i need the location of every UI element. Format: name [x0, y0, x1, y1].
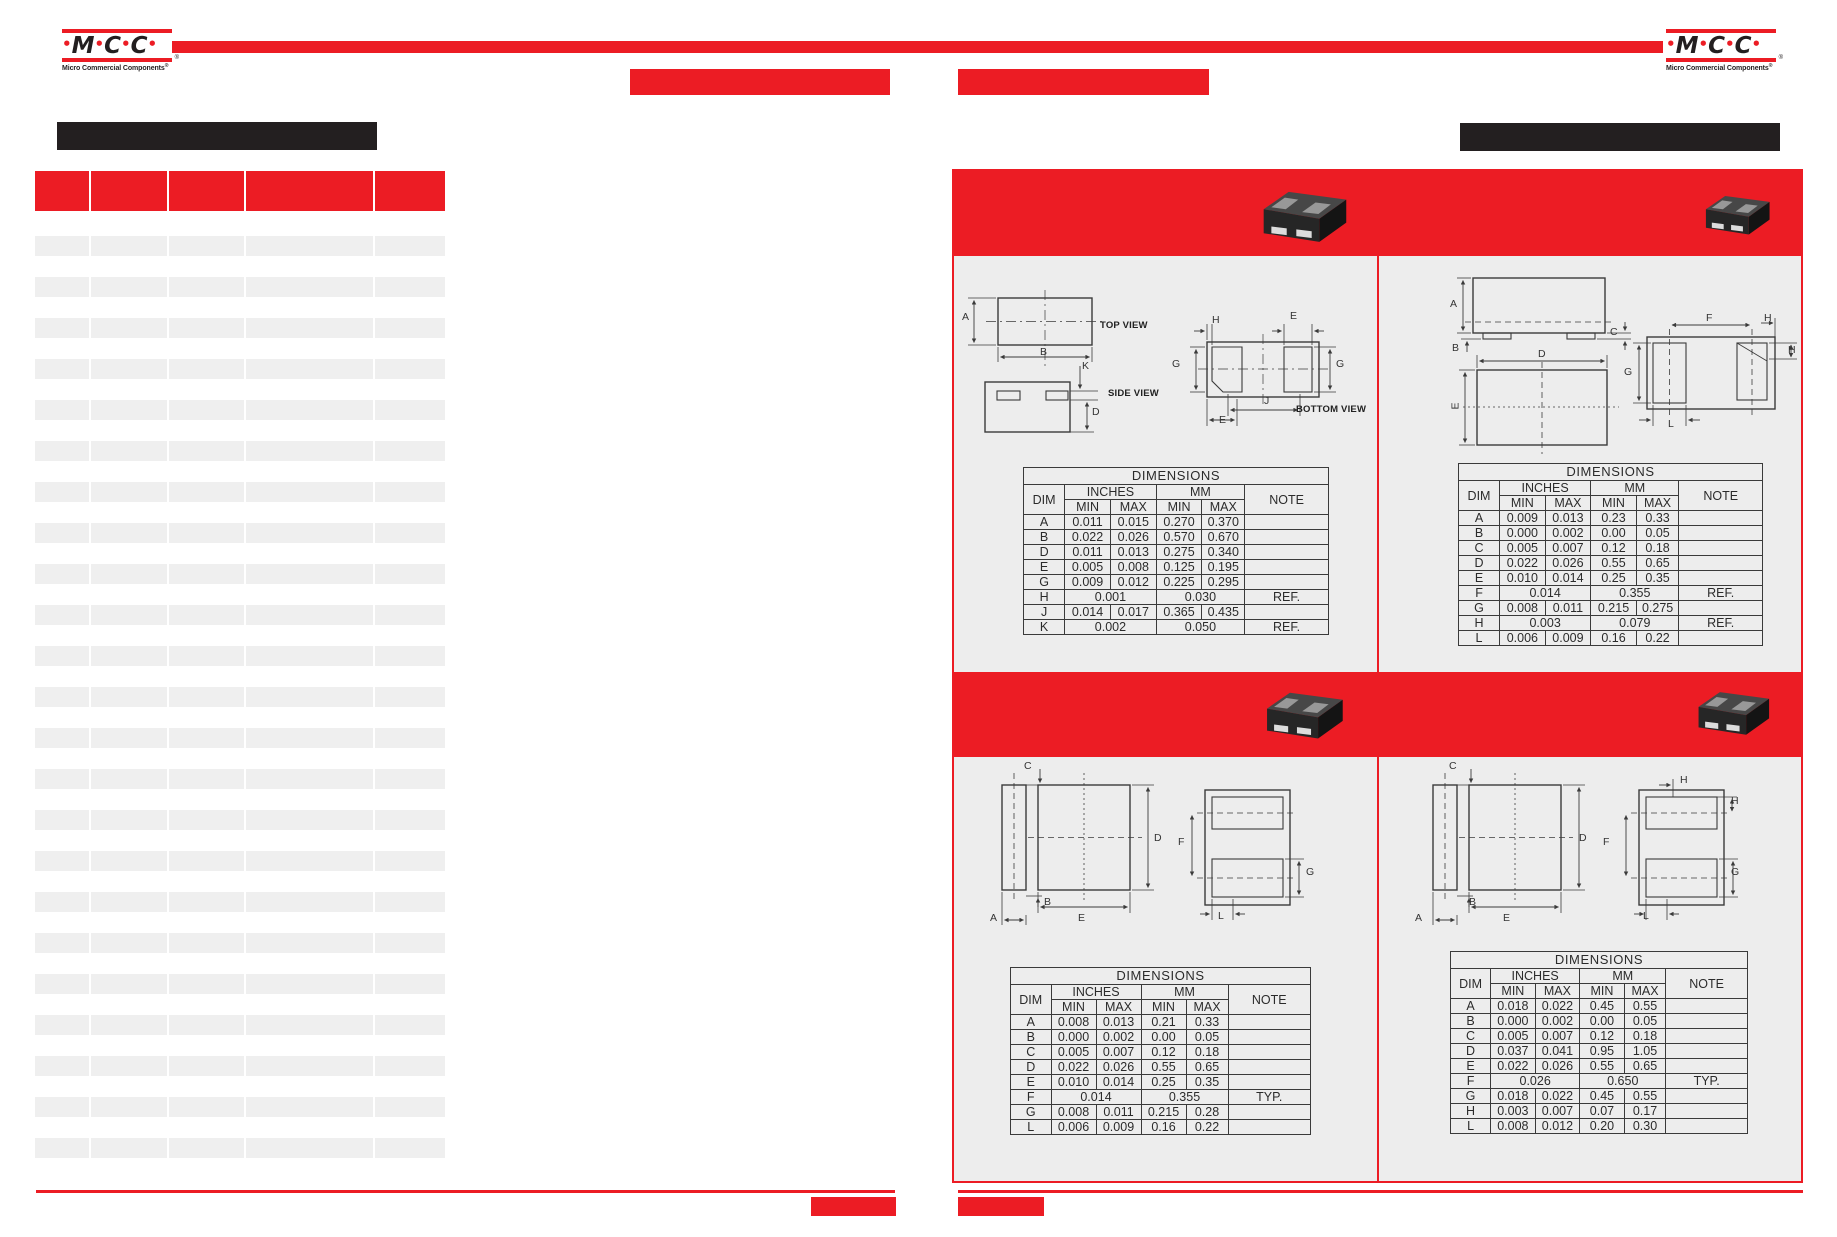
wordmark-dot: • [1666, 33, 1676, 56]
table-cell [246, 769, 373, 789]
subtitle-band-right [958, 69, 1209, 95]
logo-bottom-rule: ® [1666, 58, 1776, 62]
wordmark-letter: M [72, 35, 95, 58]
cell: 0.95 [1580, 1044, 1625, 1059]
table-cell [375, 1097, 445, 1117]
cell: 0.355 [1591, 586, 1679, 601]
table-cell [91, 400, 167, 420]
wordmark-dot: • [1698, 33, 1708, 56]
cell [1245, 575, 1329, 590]
cell: MM [1591, 481, 1679, 496]
cell: 0.022 [1500, 556, 1546, 571]
cell: MIN [1491, 984, 1536, 999]
cell: MIN [1580, 984, 1625, 999]
cell: 0.005 [1051, 1045, 1096, 1060]
package-3d-icon [1256, 180, 1352, 248]
cell [1245, 515, 1329, 530]
cell: DIM [1459, 481, 1500, 511]
table-cell [169, 277, 244, 297]
cell: 0.30 [1624, 1119, 1666, 1134]
table-row [35, 728, 445, 748]
cell [1666, 999, 1748, 1014]
table-cell [169, 810, 244, 830]
table-cell [35, 482, 89, 502]
cell: E [1011, 1075, 1052, 1090]
cell: 0.125 [1156, 560, 1202, 575]
table-cell [169, 1138, 244, 1158]
cell: DIM [1011, 985, 1052, 1015]
table-cell [169, 769, 244, 789]
cell: 0.20 [1580, 1119, 1625, 1134]
cell [1679, 571, 1763, 586]
cell: 0.012 [1110, 575, 1156, 590]
table-cell [375, 1138, 445, 1158]
dimensions-table-q4: DIMENSIONSDIMINCHESMMNOTEMINMAXMINMAXA0.… [1450, 951, 1748, 1134]
cell: 0.003 [1500, 616, 1591, 631]
cell: 0.295 [1202, 575, 1245, 590]
table-cell [246, 318, 373, 338]
table-cell [246, 851, 373, 871]
cell: 0.25 [1591, 571, 1637, 586]
table-cell [375, 728, 445, 748]
dimensions-table-q2: DIMENSIONSDIMINCHESMMNOTEMINMAXMINMAXA0.… [1458, 463, 1763, 646]
cell: 0.05 [1186, 1030, 1228, 1045]
cell: INCHES [1065, 485, 1157, 500]
table-cell [169, 359, 244, 379]
cell: MIN [1051, 1000, 1096, 1015]
cell: 0.013 [1545, 511, 1591, 526]
table-cell [375, 523, 445, 543]
cell [1228, 1015, 1311, 1030]
table-cell [169, 1015, 244, 1035]
table-cell [91, 482, 167, 502]
cell: E [1459, 571, 1500, 586]
table-row [35, 400, 445, 420]
cell: 0.670 [1202, 530, 1245, 545]
dimensions-table: DIMENSIONSDIMINCHESMMNOTEMINMAXMINMAXA0.… [1450, 951, 1748, 1134]
table-header-cell [35, 171, 89, 211]
cell: 0.005 [1491, 1029, 1536, 1044]
table-cell [169, 646, 244, 666]
table-cell [375, 933, 445, 953]
logo-tagline: Micro Commercial Components® [1666, 63, 1776, 72]
cell: 0.006 [1051, 1120, 1096, 1135]
table-cell [91, 277, 167, 297]
cell [1245, 605, 1329, 620]
cell: MIN [1065, 500, 1111, 515]
table-cell [246, 1015, 373, 1035]
footer-rule-left [36, 1190, 895, 1193]
cell: 0.018 [1491, 1089, 1536, 1104]
table-cell [246, 564, 373, 584]
datasheet-page: •M•C•C• ® Micro Commercial Components® •… [0, 0, 1837, 1237]
cell: 0.18 [1636, 541, 1679, 556]
cell: INCHES [1051, 985, 1141, 1000]
table-row [35, 851, 445, 871]
cell: E [1451, 1059, 1491, 1074]
cell: 0.008 [1051, 1105, 1096, 1120]
cell: 0.28 [1186, 1105, 1228, 1120]
cell: 0.35 [1186, 1075, 1228, 1090]
table-cell [35, 810, 89, 830]
cell: 0.65 [1624, 1059, 1666, 1074]
parts-table-header [35, 171, 445, 211]
cell [1679, 511, 1763, 526]
cell: 0.16 [1591, 631, 1637, 646]
cell: K [1024, 620, 1065, 635]
table-cell [246, 646, 373, 666]
table-cell [246, 1138, 373, 1158]
cell [1679, 631, 1763, 646]
table-cell [375, 359, 445, 379]
cell: 0.014 [1096, 1075, 1141, 1090]
table-cell [246, 482, 373, 502]
cell: 0.365 [1156, 605, 1202, 620]
cell: MM [1156, 485, 1244, 500]
cell: 0.012 [1535, 1119, 1580, 1134]
cell: DIMENSIONS [1024, 468, 1329, 485]
cell: MAX [1110, 500, 1156, 515]
table-cell [91, 318, 167, 338]
cell: 0.45 [1580, 999, 1625, 1014]
cell: DIM [1024, 485, 1065, 515]
table-cell [91, 236, 167, 256]
cell [1679, 526, 1763, 541]
cell: 0.014 [1500, 586, 1591, 601]
cell: L [1011, 1120, 1052, 1135]
cell: MAX [1545, 496, 1591, 511]
cell [1666, 1014, 1748, 1029]
table-cell [246, 359, 373, 379]
cell: 0.002 [1096, 1030, 1141, 1045]
cell: 0.001 [1065, 590, 1157, 605]
table-cell [246, 1056, 373, 1076]
table-cell [375, 1056, 445, 1076]
table-cell [91, 646, 167, 666]
wordmark-dot: • [1751, 33, 1761, 56]
cell: H [1451, 1104, 1491, 1119]
cell: 0.355 [1141, 1090, 1228, 1105]
cell: 0.022 [1065, 530, 1111, 545]
cell: MIN [1591, 496, 1637, 511]
dimensions-table-q3: DIMENSIONSDIMINCHESMMNOTEMINMAXMINMAXA0.… [1010, 967, 1311, 1135]
table-cell [35, 277, 89, 297]
cell: 0.026 [1096, 1060, 1141, 1075]
table-cell [169, 523, 244, 543]
cell: MAX [1535, 984, 1580, 999]
table-cell [375, 974, 445, 994]
cell [1228, 1105, 1311, 1120]
table-cell [169, 236, 244, 256]
table-cell [91, 687, 167, 707]
cell: 0.011 [1065, 545, 1111, 560]
footer-block-left [811, 1197, 896, 1216]
cell: 0.22 [1636, 631, 1679, 646]
cell: REF. [1245, 620, 1329, 635]
package-3d-icon [1260, 682, 1348, 744]
cell: 0.014 [1051, 1090, 1141, 1105]
table-cell [246, 810, 373, 830]
cell [1228, 1120, 1311, 1135]
wordmark-letter: C [104, 35, 121, 58]
dimensions-table: DIMENSIONSDIMINCHESMMNOTEMINMAXMINMAXA0.… [1458, 463, 1763, 646]
cell: 0.002 [1065, 620, 1157, 635]
table-cell [35, 687, 89, 707]
cell: 0.013 [1096, 1015, 1141, 1030]
table-cell [246, 1097, 373, 1117]
cell: 0.008 [1500, 601, 1546, 616]
table-cell [35, 728, 89, 748]
table-cell [91, 523, 167, 543]
parts-table-body [35, 236, 445, 1179]
cell: DIMENSIONS [1011, 968, 1311, 985]
table-row [35, 1097, 445, 1117]
table-cell [375, 236, 445, 256]
registered-mark: ® [1769, 63, 1773, 69]
cell: DIMENSIONS [1451, 952, 1748, 969]
cell: C [1451, 1029, 1491, 1044]
cell: 0.23 [1591, 511, 1637, 526]
cell: NOTE [1679, 481, 1763, 511]
cell: 0.009 [1500, 511, 1546, 526]
cell: G [1451, 1089, 1491, 1104]
table-cell [91, 974, 167, 994]
table-cell [91, 728, 167, 748]
cell: 0.009 [1096, 1120, 1141, 1135]
cell: 0.011 [1096, 1105, 1141, 1120]
wordmark-dot: • [1725, 33, 1735, 56]
table-row [35, 1015, 445, 1035]
cell [1228, 1075, 1311, 1090]
cell: A [1024, 515, 1065, 530]
cell: MAX [1624, 984, 1666, 999]
wordmark-dot: • [121, 33, 131, 56]
cell [1666, 1044, 1748, 1059]
cell: 0.17 [1624, 1104, 1666, 1119]
table-row [35, 318, 445, 338]
cell: 0.215 [1141, 1105, 1186, 1120]
cell: 0.014 [1545, 571, 1591, 586]
table-row [35, 933, 445, 953]
cell: REF. [1245, 590, 1329, 605]
cell: NOTE [1228, 985, 1311, 1015]
cell: 0.270 [1156, 515, 1202, 530]
cell: 0.55 [1624, 1089, 1666, 1104]
top-banner-rule [172, 41, 1663, 53]
cell: 0.225 [1156, 575, 1202, 590]
cell: MAX [1636, 496, 1679, 511]
cell: 0.65 [1636, 556, 1679, 571]
logo-tagline: Micro Commercial Components® [62, 63, 172, 72]
table-row [35, 1056, 445, 1076]
cell: 0.010 [1051, 1075, 1096, 1090]
cell: 0.00 [1141, 1030, 1186, 1045]
cell: MIN [1500, 496, 1546, 511]
table-cell [35, 974, 89, 994]
tagline-text: Micro Commercial Components [1666, 65, 1769, 72]
table-cell [91, 1056, 167, 1076]
table-cell [35, 605, 89, 625]
cell: F [1011, 1090, 1052, 1105]
cell: D [1024, 545, 1065, 560]
cell: 0.22 [1186, 1120, 1228, 1135]
cell: 0.570 [1156, 530, 1202, 545]
cell: 0.275 [1156, 545, 1202, 560]
cell: 0.018 [1491, 999, 1536, 1014]
mcc-logo-right: •M•C•C• ® Micro Commercial Components® [1666, 29, 1776, 72]
table-cell [375, 810, 445, 830]
table-cell [246, 605, 373, 625]
table-cell [35, 1097, 89, 1117]
dimensions-table: DIMENSIONSDIMINCHESMMNOTEMINMAXMINMAXA0.… [1023, 467, 1329, 635]
cell: REF. [1679, 586, 1763, 601]
table-cell [169, 318, 244, 338]
cell: B [1451, 1014, 1491, 1029]
wordmark-dot: • [62, 33, 72, 56]
package-3d-icon [1692, 682, 1774, 740]
cell: 0.00 [1591, 526, 1637, 541]
cell [1679, 556, 1763, 571]
cell: 0.215 [1591, 601, 1637, 616]
cell: INCHES [1500, 481, 1591, 496]
cell: 0.026 [1110, 530, 1156, 545]
cell: NOTE [1245, 485, 1329, 515]
cell: F [1451, 1074, 1491, 1089]
cell: 0.009 [1065, 575, 1111, 590]
table-row [35, 236, 445, 256]
cell: 0.008 [1051, 1015, 1096, 1030]
cell: 0.33 [1636, 511, 1679, 526]
table-cell [35, 400, 89, 420]
cell: D [1451, 1044, 1491, 1059]
cell: 0.370 [1202, 515, 1245, 530]
table-cell [375, 318, 445, 338]
table-cell [169, 851, 244, 871]
table-row [35, 810, 445, 830]
table-cell [375, 482, 445, 502]
cell: 0.195 [1202, 560, 1245, 575]
table-cell [91, 1015, 167, 1035]
cell: DIMENSIONS [1459, 464, 1763, 481]
wordmark-letter: C [1708, 35, 1725, 58]
table-header-cell [375, 171, 445, 211]
cell: B [1459, 526, 1500, 541]
wordmark-dot: • [147, 33, 157, 56]
cell [1666, 1029, 1748, 1044]
cell: 0.65 [1186, 1060, 1228, 1075]
cell: 0.037 [1491, 1044, 1536, 1059]
cell: C [1459, 541, 1500, 556]
cell: 0.079 [1591, 616, 1679, 631]
cell: A [1459, 511, 1500, 526]
logo-bottom-rule: ® [62, 58, 172, 62]
table-cell [169, 933, 244, 953]
cell: 0.005 [1500, 541, 1546, 556]
cell: 0.340 [1202, 545, 1245, 560]
table-cell [91, 605, 167, 625]
table-row [35, 564, 445, 584]
table-cell [246, 892, 373, 912]
cell: 0.12 [1580, 1029, 1625, 1044]
cell: 0.011 [1065, 515, 1111, 530]
cell: H [1024, 590, 1065, 605]
table-cell [375, 892, 445, 912]
cell: 0.022 [1535, 999, 1580, 1014]
table-cell [375, 687, 445, 707]
table-cell [35, 646, 89, 666]
table-cell [375, 1015, 445, 1035]
table-cell [375, 564, 445, 584]
cell [1666, 1089, 1748, 1104]
cell: 0.45 [1580, 1089, 1625, 1104]
cell: 0.18 [1186, 1045, 1228, 1060]
registered-mark: ® [175, 55, 179, 61]
table-cell [246, 933, 373, 953]
table-cell [246, 400, 373, 420]
cell: MAX [1202, 500, 1245, 515]
table-row [35, 277, 445, 297]
table-row [35, 687, 445, 707]
table-cell [35, 1138, 89, 1158]
panel-divider [1377, 171, 1379, 1181]
cell: 0.013 [1110, 545, 1156, 560]
cell: 0.650 [1580, 1074, 1666, 1089]
cell: 0.007 [1545, 541, 1591, 556]
cell: MAX [1096, 1000, 1141, 1015]
cell: 0.55 [1624, 999, 1666, 1014]
cell: 0.435 [1202, 605, 1245, 620]
table-cell [246, 277, 373, 297]
cell: H [1459, 616, 1500, 631]
table-cell [35, 1015, 89, 1035]
cell: 0.011 [1545, 601, 1591, 616]
table-cell [35, 933, 89, 953]
cell: 0.014 [1065, 605, 1111, 620]
cell: 0.16 [1141, 1120, 1186, 1135]
table-cell [246, 728, 373, 748]
table-row [35, 482, 445, 502]
cell: 0.009 [1545, 631, 1591, 646]
table-cell [246, 523, 373, 543]
cell: 0.05 [1636, 526, 1679, 541]
table-cell [35, 769, 89, 789]
table-cell [169, 482, 244, 502]
table-row [35, 646, 445, 666]
cell: 0.026 [1491, 1074, 1580, 1089]
table-row [35, 1138, 445, 1158]
tagline-text: Micro Commercial Components [62, 65, 165, 72]
table-header-cell [246, 171, 373, 211]
table-row [35, 605, 445, 625]
cell: 0.017 [1110, 605, 1156, 620]
footer-block-right [958, 1197, 1044, 1216]
cell: 0.003 [1491, 1104, 1536, 1119]
cell: 0.010 [1500, 571, 1546, 586]
table-header-cell [169, 171, 244, 211]
cell: C [1011, 1045, 1052, 1060]
cell: 0.00 [1580, 1014, 1625, 1029]
footer-rule-right [958, 1190, 1803, 1193]
table-cell [35, 318, 89, 338]
cell: 0.007 [1535, 1029, 1580, 1044]
table-cell [375, 605, 445, 625]
table-cell [91, 1097, 167, 1117]
cell: TYP. [1666, 1074, 1748, 1089]
cell: 0.275 [1636, 601, 1679, 616]
cell: MIN [1156, 500, 1202, 515]
table-cell [91, 810, 167, 830]
table-cell [91, 359, 167, 379]
